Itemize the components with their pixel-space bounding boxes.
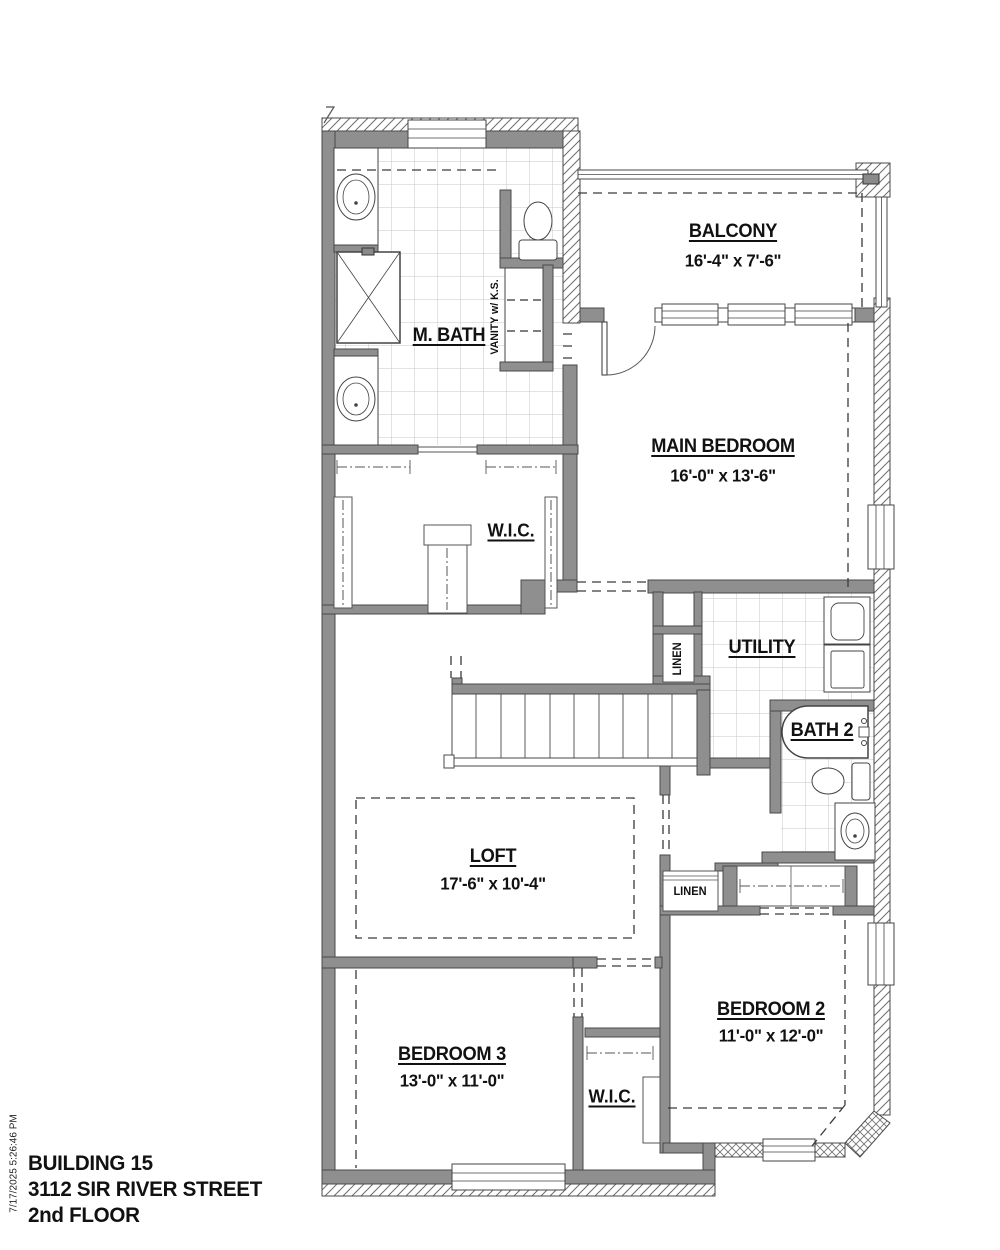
- floor-plan-page: BALCONY 16'-4" x 7'-6" M. BATH VANITY w/…: [0, 0, 1000, 1250]
- m-bath-label: M. BATH: [413, 325, 486, 347]
- street-title: 3112 SIR RIVER STREET: [28, 1177, 262, 1203]
- balcony-dims: 16'-4" x 7'-6": [685, 251, 781, 272]
- title-block: BUILDING 15 3112 SIR RIVER STREET 2nd FL…: [28, 1151, 262, 1229]
- bedroom3-dims: 13'-0" x 11'-0": [400, 1071, 505, 1092]
- vanity-label: VANITY w/ K.S.: [489, 279, 501, 354]
- wic-bedroom3-label: W.I.C.: [588, 1087, 635, 1108]
- main-bedroom-dims: 16'-0" x 13'-6": [670, 466, 776, 487]
- vanity-cabinet: [505, 268, 543, 362]
- floor-title: 2nd FLOOR: [28, 1203, 262, 1229]
- main-bedroom-label: MAIN BEDROOM: [651, 436, 794, 458]
- bedroom2-closet: [737, 866, 845, 906]
- linen-utility-label: LINEN: [672, 642, 684, 675]
- building-title: BUILDING 15: [28, 1151, 262, 1177]
- linen-hall-label: LINEN: [673, 886, 706, 898]
- bedroom3-label: BEDROOM 3: [398, 1044, 506, 1066]
- plot-timestamp: 7/17/2025 5:26:46 PM: [9, 1094, 20, 1234]
- stairs: [444, 694, 697, 768]
- door-arc: [602, 322, 655, 375]
- bedroom2-dims: 11'-0" x 12'-0": [719, 1026, 824, 1047]
- balcony-label: BALCONY: [689, 221, 777, 243]
- shower-icon: [337, 248, 400, 343]
- wic-master-label: W.I.C.: [487, 521, 534, 542]
- loft-label: LOFT: [470, 846, 516, 868]
- washer-dryer-icon: [824, 597, 870, 692]
- bedroom2-label: BEDROOM 2: [717, 999, 825, 1021]
- bath2-label: BATH 2: [791, 720, 854, 742]
- loft-dims: 17'-6" x 10'-4": [440, 874, 546, 895]
- utility-label: UTILITY: [729, 637, 796, 659]
